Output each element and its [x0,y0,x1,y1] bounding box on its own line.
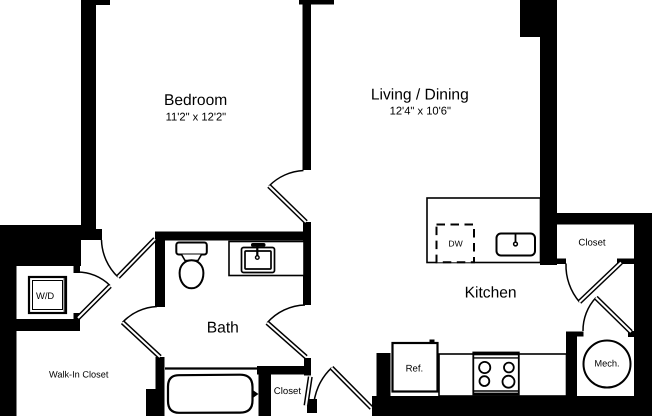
svg-text:Mech.: Mech. [594,359,619,369]
svg-text:Closet: Closet [274,386,302,397]
svg-text:12'4" x 10'6": 12'4" x 10'6" [390,106,451,118]
svg-text:Bath: Bath [207,319,239,336]
svg-text:Closet: Closet [578,238,606,249]
svg-text:Walk-In Closet: Walk-In Closet [49,369,109,379]
svg-text:Living / Dining: Living / Dining [371,87,469,104]
svg-text:Kitchen: Kitchen [465,285,517,302]
svg-text:W/D: W/D [36,290,54,301]
svg-text:11'2" x 12'2": 11'2" x 12'2" [166,112,227,124]
svg-text:Bedroom: Bedroom [164,92,227,109]
svg-text:DW: DW [448,238,463,248]
svg-text:Ref.: Ref. [406,363,424,374]
